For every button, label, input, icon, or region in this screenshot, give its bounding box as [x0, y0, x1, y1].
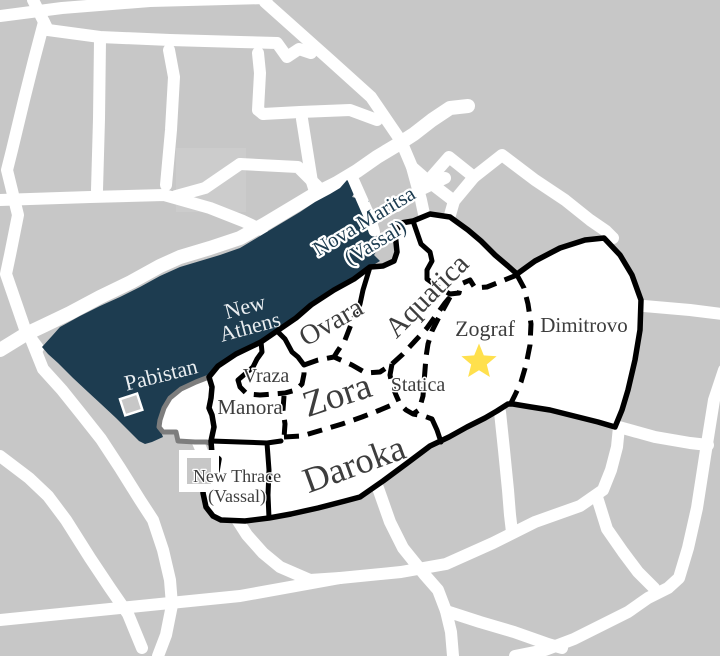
svg-text:Manora: Manora [217, 395, 283, 419]
svg-text:Vraza: Vraza [243, 365, 290, 387]
svg-text:New Thrace: New Thrace [193, 466, 281, 486]
svg-text:(Vassal): (Vassal) [208, 486, 266, 507]
svg-text:Dimitrovo: Dimitrovo [540, 313, 628, 337]
svg-text:Statica: Statica [391, 374, 446, 396]
svg-text:Zograf: Zograf [455, 316, 516, 341]
